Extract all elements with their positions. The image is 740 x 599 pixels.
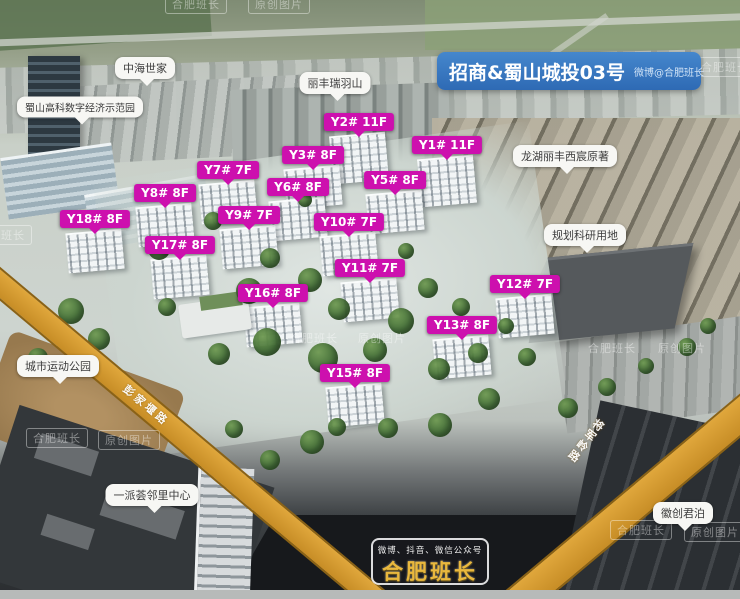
tree — [558, 398, 578, 418]
tree — [253, 328, 281, 356]
brand-name: 合肥班长 — [373, 556, 487, 586]
building-label-y15: Y15# 8F — [320, 364, 390, 382]
watermark-text: 合肥班长 — [0, 225, 32, 245]
tree — [478, 388, 500, 410]
watermark-text: 原创图片 — [658, 340, 706, 356]
tree — [398, 243, 414, 259]
tree — [260, 248, 280, 268]
tree — [598, 378, 616, 396]
poi-label-zhonghai-shijia: 中海世家 — [115, 57, 175, 79]
tree — [260, 450, 280, 470]
tree — [328, 298, 350, 320]
tree — [452, 298, 470, 316]
poi-label-city-sports-park: 城市运动公园 — [17, 355, 99, 377]
building-label-y12: Y12# 7F — [490, 275, 560, 293]
poi-label-longhu-lifeng: 龙湖丽丰西宸原著 — [513, 145, 617, 167]
aerial-map: 彭家堰路 将军岭路 合肥班长 原创图片 合肥班长 合肥班长 合肥班长 原创图片 … — [0, 0, 740, 599]
tree — [225, 420, 243, 438]
tree — [208, 343, 230, 365]
building-label-y3: Y3# 8F — [282, 146, 344, 164]
watermark-text: 原创图片 — [98, 430, 160, 450]
watermark-text: 原创图片 — [684, 522, 740, 542]
poi-label-shushan-hi-tech-park: 蜀山高科数字经济示范园 — [17, 97, 143, 118]
watermark-text: 合肥班长 — [165, 0, 227, 14]
watermark-text: 原创图片 — [248, 0, 310, 14]
building-label-y8: Y8# 8F — [134, 184, 196, 202]
brand-channels: 微博、抖音、微信公众号 — [373, 544, 487, 556]
building-label-y7: Y7# 7F — [197, 161, 259, 179]
weibo-credit: 微博@合肥班长 — [634, 64, 704, 79]
tree — [158, 298, 176, 316]
bottom-road-edge — [0, 590, 740, 599]
tree — [518, 348, 536, 366]
tree — [428, 358, 450, 380]
watermark-text: 原创图片 — [358, 330, 406, 346]
tree — [418, 278, 438, 298]
tree — [378, 418, 398, 438]
poi-label-research-site: 规划科研用地 — [544, 224, 626, 246]
building-label-y11: Y11# 7F — [335, 259, 405, 277]
tree — [700, 318, 716, 334]
rooftop-unit — [41, 514, 95, 550]
building-label-y5: Y5# 8F — [364, 171, 426, 189]
building-label-y16: Y16# 8F — [238, 284, 308, 302]
building-label-y18: Y18# 8F — [60, 210, 130, 228]
residential-building — [150, 255, 209, 300]
poi-label-lifeng-ruiyushan: 丽丰瑞羽山 — [300, 72, 371, 94]
tree — [468, 343, 488, 363]
building-label-y6: Y6# 8F — [267, 178, 329, 196]
watermark-text: 合肥班长 — [26, 428, 88, 448]
poi-label-huichuang-junbo: 徽创君泊 — [653, 502, 713, 524]
watermark-text: 合肥班长 — [290, 330, 338, 346]
brand-box: 微博、抖音、微信公众号 合肥班长 — [371, 538, 489, 585]
project-title: 招商&蜀山城投03号 — [449, 58, 625, 85]
tree — [300, 430, 324, 454]
tree — [328, 418, 346, 436]
watermark-text: 合肥班长 — [588, 340, 636, 356]
building-label-y1: Y1# 11F — [412, 136, 482, 154]
building-label-y9: Y9# 7F — [218, 206, 280, 224]
poi-label-neighborhood-center: 一派荟邻里中心 — [106, 484, 199, 506]
tree — [498, 318, 514, 334]
building-label-y13: Y13# 8F — [427, 316, 497, 334]
building-label-y10: Y10# 7F — [314, 213, 384, 231]
tree — [638, 358, 654, 374]
building-label-y17: Y17# 8F — [145, 236, 215, 254]
tree — [428, 413, 452, 437]
title-banner: 招商&蜀山城投03号 微博@合肥班长 — [437, 52, 701, 90]
residential-building — [417, 155, 477, 208]
building-label-y2: Y2# 11F — [324, 113, 394, 131]
residential-building — [65, 229, 124, 274]
